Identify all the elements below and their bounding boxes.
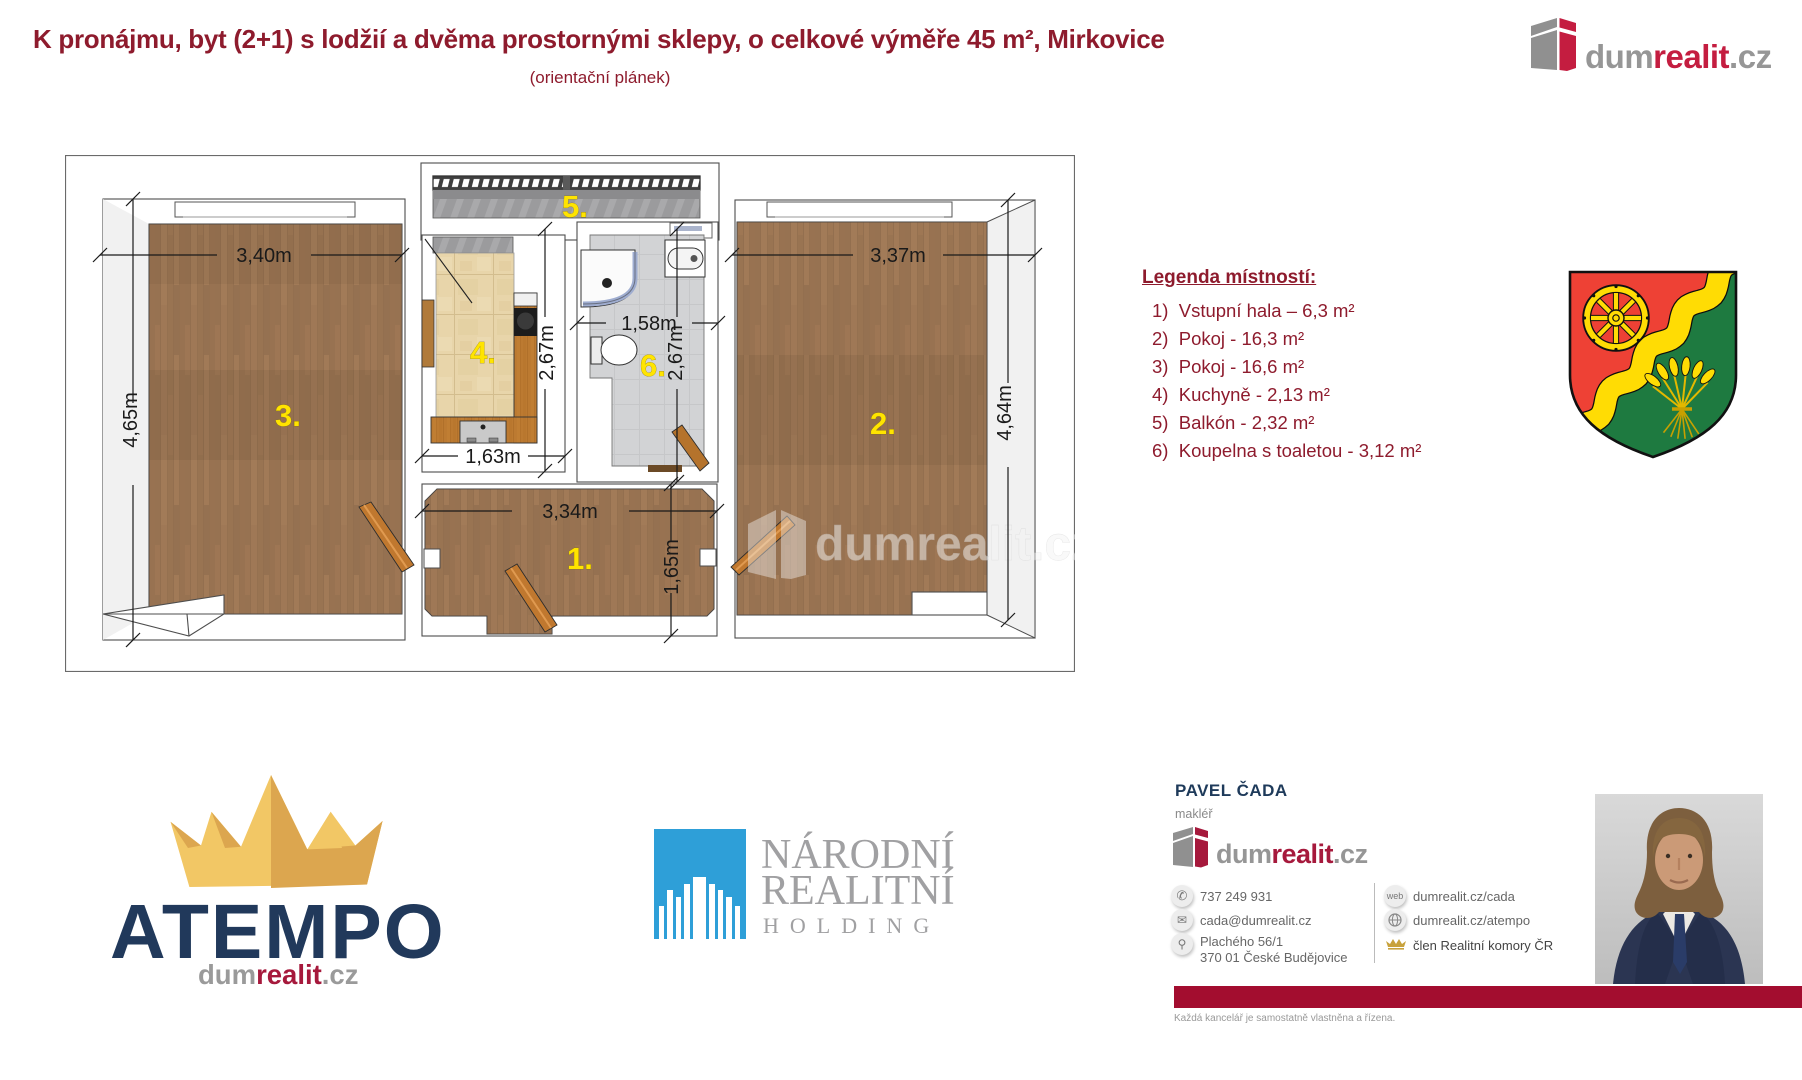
svg-text:3,40m: 3,40m bbox=[236, 245, 292, 267]
svg-text:REALITNÍ: REALITNÍ bbox=[761, 867, 955, 914]
svg-text:dumrealit.cz: dumrealit.cz bbox=[815, 518, 1075, 571]
svg-text:6.: 6. bbox=[640, 348, 666, 383]
svg-text:4.: 4. bbox=[470, 335, 496, 370]
svg-text:3,34m: 3,34m bbox=[542, 501, 598, 523]
svg-text:dumrealit.cz: dumrealit.cz bbox=[198, 959, 358, 990]
svg-text:1,63m: 1,63m bbox=[465, 446, 521, 468]
svg-text:3.: 3. bbox=[275, 398, 301, 433]
svg-text:dumrealit.cz: dumrealit.cz bbox=[1216, 839, 1368, 869]
svg-text:dumrealit.cz: dumrealit.cz bbox=[1585, 38, 1772, 75]
svg-text:4,65m: 4,65m bbox=[120, 392, 142, 448]
svg-text:3,37m: 3,37m bbox=[870, 245, 926, 267]
svg-text:1.: 1. bbox=[567, 541, 593, 576]
svg-text:1,65m: 1,65m bbox=[661, 539, 683, 595]
svg-text:4,64m: 4,64m bbox=[994, 385, 1016, 441]
svg-text:2.: 2. bbox=[870, 406, 896, 441]
svg-text:5.: 5. bbox=[562, 189, 588, 224]
svg-text:2,67m: 2,67m bbox=[665, 325, 687, 381]
svg-text:2,67m: 2,67m bbox=[536, 325, 558, 381]
svg-text:HOLDING: HOLDING bbox=[763, 913, 940, 938]
